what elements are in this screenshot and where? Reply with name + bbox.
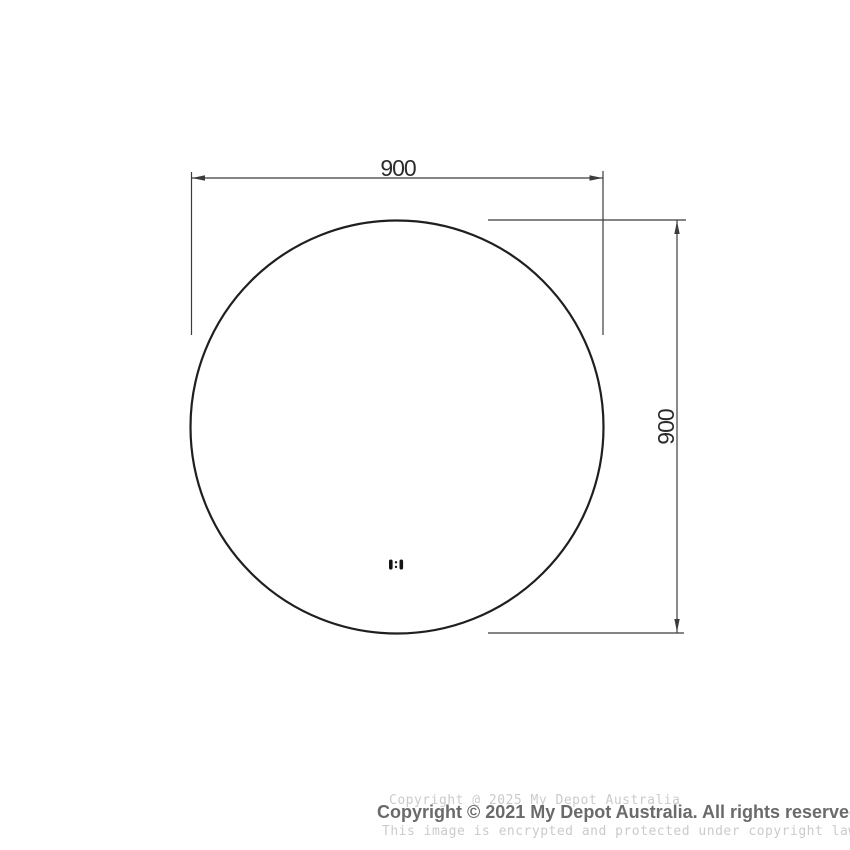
product-dimension-drawing: 900 900 Copyright @ 2025 My Depot Austra… (0, 0, 850, 850)
width-arrow-left (192, 175, 205, 180)
touch-sensor-icon (389, 560, 403, 570)
height-dimension-label: 900 (653, 409, 679, 445)
height-arrow-bottom (674, 619, 679, 632)
watermark-bottom-text: This image is encrypted and protected un… (382, 824, 850, 839)
mirror-circle-outline (191, 221, 604, 634)
height-arrow-top (674, 221, 679, 234)
width-dimension (192, 171, 604, 335)
copyright-text: Copyright © 2021 My Depot Australia. All… (377, 802, 850, 823)
width-dimension-label: 900 (380, 155, 416, 181)
width-arrow-right (590, 175, 603, 180)
drawing-svg: 900 900 (0, 0, 850, 850)
